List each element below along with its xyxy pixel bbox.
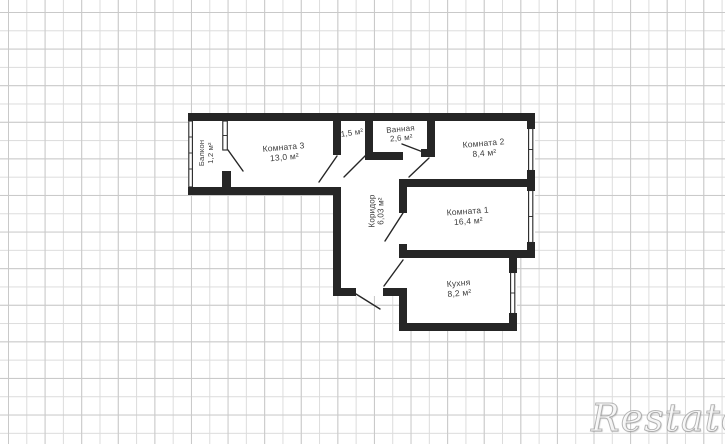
room-label-corridor: Коридор 6,03 м²	[368, 195, 387, 228]
entry-door	[356, 294, 380, 309]
floor-plan-drawing	[0, 0, 725, 444]
watermark-text: Restate	[591, 396, 725, 440]
room-label-room1: Комната 1 16,4 м²	[446, 205, 489, 228]
floor-plan-canvas: Балкон 1,2 м² Комната 3 13,0 м² 1,5 м² В…	[0, 0, 725, 444]
room-label-room2: Комната 2 8,4 м²	[462, 136, 506, 160]
room-label-kitchen: Кухня 8,2 м²	[446, 277, 472, 299]
room-label-bathroom: Ванная 2,6 м²	[386, 123, 416, 144]
balcony-window	[189, 121, 193, 187]
room-label-balcony: Балкон 1,2 м²	[198, 140, 216, 166]
room-label-room3: Комната 3 13,0 м²	[262, 140, 306, 164]
